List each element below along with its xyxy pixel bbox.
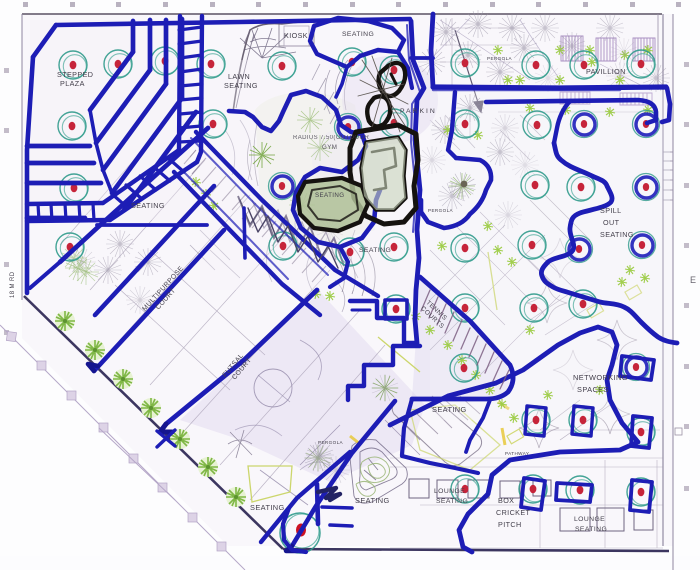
svg-text:PERGOLA: PERGOLA bbox=[318, 440, 344, 445]
svg-text:LOUNGE: LOUNGE bbox=[434, 488, 465, 495]
svg-text:PAVILLION: PAVILLION bbox=[586, 67, 626, 76]
svg-text:SEATING: SEATING bbox=[355, 496, 390, 505]
svg-text:SEATING: SEATING bbox=[131, 201, 165, 210]
svg-text:BOX: BOX bbox=[498, 496, 514, 505]
svg-text:PLAZA: PLAZA bbox=[60, 79, 85, 88]
svg-text:PATHWAY: PATHWAY bbox=[505, 451, 529, 456]
svg-text:PERGOLA: PERGOLA bbox=[487, 56, 513, 61]
svg-text:SEATING: SEATING bbox=[436, 498, 468, 505]
svg-text:SPACES: SPACES bbox=[577, 385, 609, 394]
svg-text:SEATING: SEATING bbox=[600, 230, 634, 239]
svg-text:CRICKET: CRICKET bbox=[496, 508, 531, 517]
svg-text:SEATING: SEATING bbox=[432, 405, 467, 414]
svg-text:LAWN: LAWN bbox=[228, 72, 250, 81]
svg-text:PITCH: PITCH bbox=[498, 520, 522, 529]
svg-text:NETWORKING: NETWORKING bbox=[573, 373, 628, 382]
svg-text:STEPPED: STEPPED bbox=[57, 70, 93, 79]
svg-text:SPILL: SPILL bbox=[600, 206, 622, 215]
svg-text:SEATING: SEATING bbox=[575, 526, 607, 533]
svg-text:LOUNGE: LOUNGE bbox=[574, 516, 605, 523]
svg-text:18 M RD: 18 M RD bbox=[10, 271, 16, 298]
svg-text:SEATING: SEATING bbox=[224, 81, 258, 90]
svg-text:SEATING: SEATING bbox=[359, 247, 391, 254]
svg-text:GYM: GYM bbox=[322, 144, 337, 151]
svg-text:E: E bbox=[690, 275, 696, 285]
svg-text:KIOSK: KIOSK bbox=[284, 31, 308, 40]
svg-text:PERGOLA: PERGOLA bbox=[428, 208, 454, 213]
svg-text:PARKIN: PARKIN bbox=[400, 108, 437, 115]
svg-text:SEATING: SEATING bbox=[315, 192, 345, 199]
svg-text:RADIUS 7.50(OUTDOOR: RADIUS 7.50(OUTDOOR bbox=[293, 135, 370, 141]
svg-text:OUT: OUT bbox=[603, 218, 620, 227]
svg-text:SEATING: SEATING bbox=[250, 503, 285, 512]
svg-text:SEATING: SEATING bbox=[342, 31, 374, 38]
